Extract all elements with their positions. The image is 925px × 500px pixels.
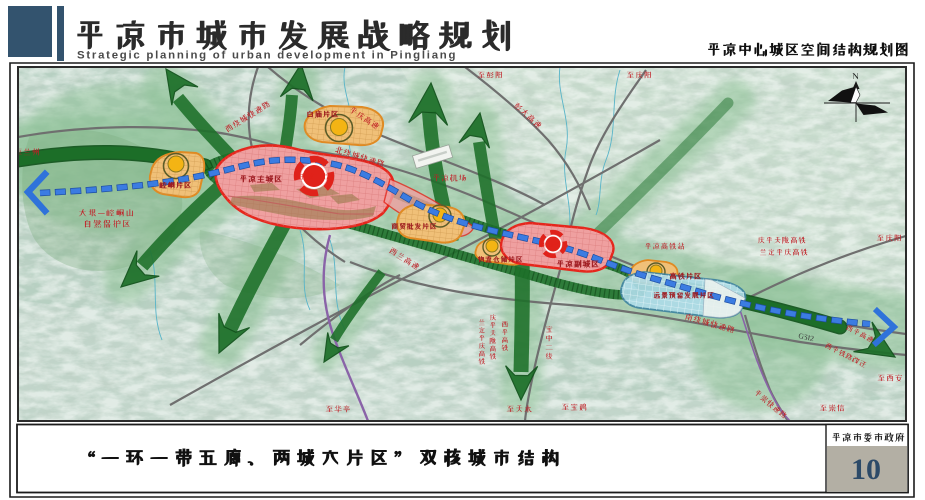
svg-text:Strategic planning of urban de: Strategic planning of urban development … — [77, 50, 457, 62]
svg-text:10: 10 — [851, 453, 881, 486]
